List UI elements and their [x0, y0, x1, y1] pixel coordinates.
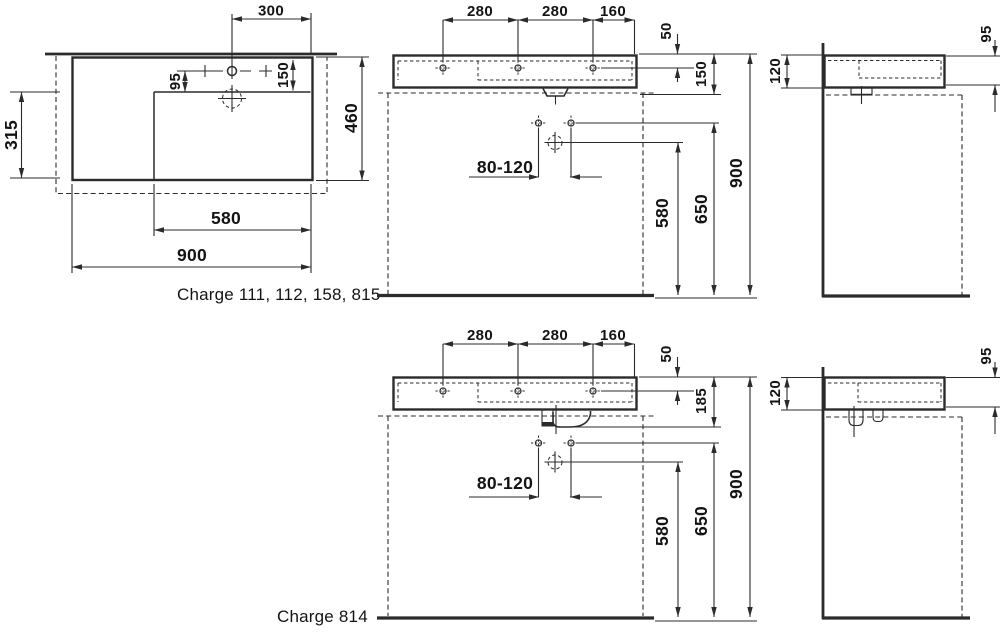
dim-plan-580: 580: [211, 208, 241, 228]
dim-front-160: 160: [600, 3, 626, 20]
front-view-charge111: 280 280 160 50 150 80-120 580 650 900: [377, 3, 757, 298]
dim-front-80-120: 80-120: [477, 473, 533, 493]
dim-front-900: 900: [726, 469, 746, 499]
dim-front-50: 50: [658, 22, 675, 39]
supply-hole: [531, 436, 546, 451]
side-view-charge814: 120 95: [767, 347, 1000, 619]
dim-front-50: 50: [658, 345, 675, 362]
dim-plan-315: 315: [1, 120, 21, 150]
dim-front-185: 185: [693, 388, 710, 414]
dim-front-580: 580: [652, 516, 672, 546]
front-dimensions: 280 280 160 50 185 80-120 580 650 900: [443, 327, 757, 617]
technical-drawing-sheet: 300 315 95 150 460 580 900 Charge 111, 1…: [0, 0, 1000, 632]
installation-zone: [378, 416, 655, 616]
drawing-svg: 300 315 95 150 460 580 900 Charge 111, 1…: [0, 0, 1000, 632]
side-view-charge111: 120 95: [767, 25, 1000, 297]
basin-outline-side: [825, 378, 945, 410]
dim-plan-300: 300: [258, 3, 284, 20]
dim-side-120: 120: [767, 380, 784, 406]
dim-plan-460: 460: [341, 103, 361, 133]
installation-zone-side: [826, 417, 962, 617]
dim-side-95: 95: [978, 347, 995, 364]
dim-front-580: 580: [652, 198, 672, 228]
front-view-charge814: 280 280 160 50 185 80-120 580 650 900: [377, 327, 757, 621]
dim-front-280b: 280: [542, 327, 568, 344]
dim-front-160: 160: [600, 327, 626, 344]
supply-hole: [564, 116, 579, 131]
waste-outlet: [545, 452, 566, 473]
basin-outline-front: [394, 378, 637, 410]
dim-front-650: 650: [691, 194, 711, 224]
dim-side-120: 120: [767, 58, 784, 84]
front-dimensions: 280 280 160 50 150 80-120 580 650 900: [443, 3, 757, 295]
dim-front-280a: 280: [467, 3, 493, 20]
dim-front-900: 900: [726, 158, 746, 188]
caption-charge-814: Charge 814: [277, 607, 368, 626]
supply-hole: [531, 116, 546, 131]
dim-front-80-120: 80-120: [477, 157, 533, 177]
installation-zone-side: [826, 95, 962, 295]
dim-front-150: 150: [693, 61, 710, 87]
dim-front-650: 650: [691, 506, 711, 536]
dim-plan-900: 900: [177, 245, 207, 265]
supply-hole: [564, 436, 579, 451]
dim-front-280a: 280: [467, 327, 493, 344]
dim-plan-95: 95: [167, 73, 184, 90]
dim-side-95: 95: [978, 25, 995, 42]
drain-outlet: [543, 89, 568, 97]
caption-charge-111-112-158-815: Charge 111, 112, 158, 815: [177, 285, 381, 304]
dim-front-280b: 280: [542, 3, 568, 20]
plan-view: 300 315 95 150 460 580 900: [1, 3, 369, 274]
basin-outline-front: [394, 56, 637, 88]
dim-plan-150: 150: [275, 62, 292, 88]
